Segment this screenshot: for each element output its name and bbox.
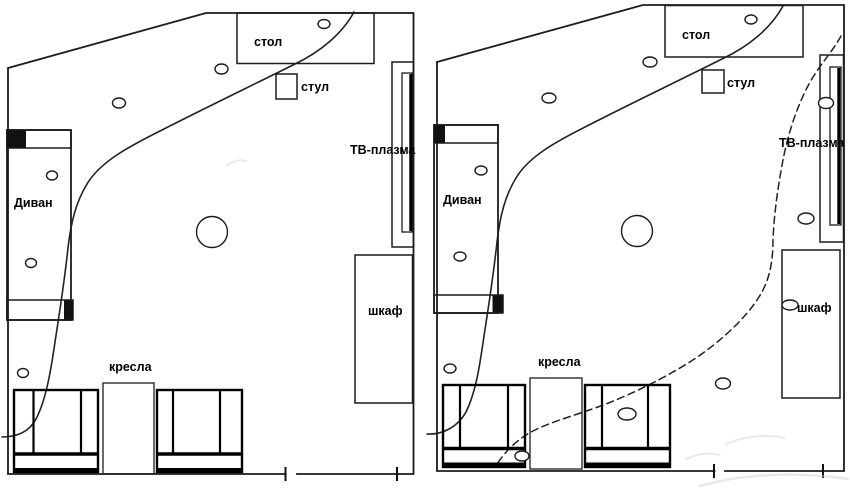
ceiling-spotlight	[18, 369, 29, 378]
chair-label: стул	[301, 80, 329, 94]
cabinet-label: шкаф	[797, 301, 832, 315]
ceiling-spotlight	[782, 300, 798, 310]
chair-rect	[276, 74, 297, 99]
ceiling-spotlight	[454, 252, 466, 261]
armchairs-label: кресла	[109, 360, 153, 374]
floor-plan-left: стол стул ТВ-плазма Диван шкаф кресла	[2, 12, 416, 481]
ceiling-spotlight	[515, 451, 529, 461]
ceiling-spotlight	[798, 213, 814, 224]
sofa-bottom-armrest-pad	[64, 301, 73, 320]
floor-plan-right: стол стул ТВ-плазма Диван шкаф кресла	[427, 5, 845, 478]
ceiling-spotlight	[26, 259, 37, 268]
sofa-rect	[7, 130, 71, 320]
floor-plans-canvas: стол стул ТВ-плазма Диван шкаф кресла	[0, 0, 850, 491]
ceiling-spotlight	[643, 57, 657, 67]
ceiling-spotlight	[444, 364, 456, 373]
artifact-smudges	[226, 160, 848, 486]
sofa-top-armrest-pad	[7, 131, 26, 148]
armchairs-label: кресла	[538, 355, 582, 369]
desk-label: стол	[254, 35, 282, 49]
coffee-table	[530, 378, 582, 469]
sofa-rect	[434, 125, 498, 313]
sofa-top-armrest-pad	[434, 126, 445, 143]
sofa-label: Диван	[14, 196, 53, 210]
armchair-left	[443, 385, 525, 467]
desk-label: стол	[682, 28, 710, 42]
ceiling-spotlight	[113, 98, 126, 108]
cabinet-label: шкаф	[368, 304, 403, 318]
coffee-table	[103, 383, 154, 474]
cabinet-rect	[782, 250, 840, 398]
tv-label: ТВ-плазма	[350, 143, 416, 157]
ceiling-zone-curve	[427, 6, 783, 434]
ceiling-spotlight	[819, 98, 834, 109]
chair-rect	[702, 70, 724, 93]
ceiling-lamp-circle	[622, 216, 653, 247]
armchair-right	[157, 390, 242, 472]
floor-plans-svg: стол стул ТВ-плазма Диван шкаф кресла	[0, 0, 850, 491]
sofa-bottom-armrest	[7, 300, 73, 320]
armchair-right	[585, 385, 670, 467]
sofa-bottom-armrest-pad	[493, 296, 504, 313]
chair-label: стул	[727, 76, 755, 90]
ceiling-spotlight	[215, 64, 228, 74]
ceiling-lamp-circle	[197, 217, 228, 248]
ceiling-spotlight	[475, 166, 487, 175]
cabinet-rect	[355, 255, 413, 403]
ceiling-zone-curve	[2, 12, 354, 437]
ceiling-spotlight	[745, 15, 757, 24]
ceiling-spotlight	[716, 378, 731, 389]
ceiling-spotlight	[618, 408, 636, 420]
sofa-label: Диван	[443, 193, 482, 207]
ceiling-spotlight	[542, 93, 556, 103]
tv-label: ТВ-плазма	[779, 136, 845, 150]
ceiling-spotlight	[47, 171, 58, 180]
ceiling-spotlight	[318, 20, 330, 29]
